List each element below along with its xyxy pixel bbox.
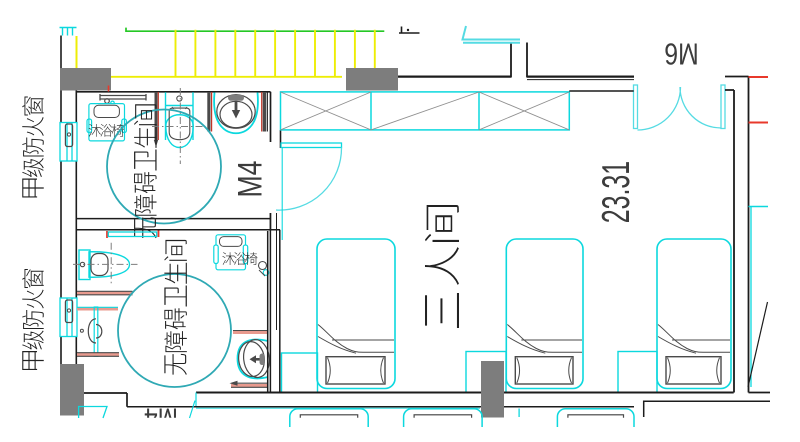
svg-text:23.31: 23.31 — [595, 161, 638, 224]
svg-text:M4: M4 — [232, 161, 270, 198]
svg-text:M6: M6 — [664, 36, 699, 71]
